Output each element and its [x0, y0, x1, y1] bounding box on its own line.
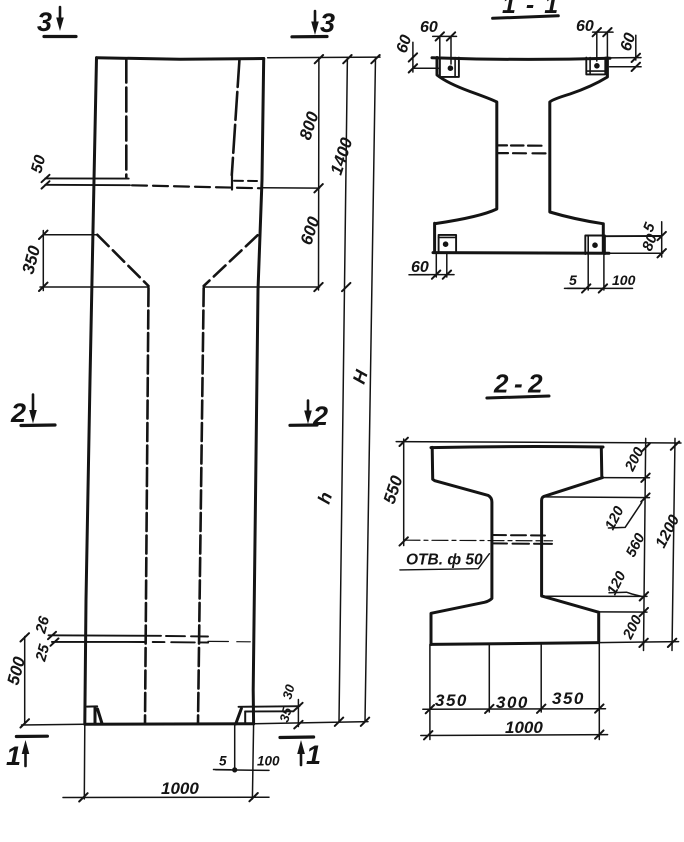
svg-text:200: 200: [620, 613, 646, 643]
svg-text:H: H: [349, 367, 372, 386]
svg-text:600: 600: [297, 214, 324, 247]
svg-text:1: 1: [6, 741, 21, 771]
svg-text:300: 300: [496, 693, 529, 712]
svg-text:5: 5: [569, 272, 577, 288]
svg-text:60: 60: [420, 19, 438, 36]
svg-text:2-2: 2-2: [493, 369, 548, 399]
svg-text:120: 120: [604, 569, 629, 598]
svg-text:3: 3: [37, 7, 52, 37]
svg-text:350: 350: [19, 243, 45, 276]
svg-text:60: 60: [576, 18, 594, 35]
svg-text:60: 60: [394, 33, 416, 55]
svg-text:100: 100: [612, 272, 636, 288]
svg-text:1000: 1000: [161, 779, 199, 798]
svg-text:3: 3: [320, 8, 335, 38]
svg-text:550: 550: [380, 473, 407, 506]
svg-text:1: 1: [306, 740, 321, 770]
svg-text:ОТВ. ф 50: ОТВ. ф 50: [406, 552, 483, 569]
svg-text:h: h: [314, 490, 336, 507]
svg-text:60: 60: [411, 259, 429, 276]
svg-text:80: 80: [639, 231, 661, 253]
svg-text:1000: 1000: [505, 718, 543, 737]
svg-text:5: 5: [219, 754, 227, 769]
svg-text:350: 350: [552, 689, 585, 708]
svg-text:50: 50: [28, 153, 49, 175]
svg-text:35: 35: [276, 705, 294, 724]
svg-text:100: 100: [257, 754, 280, 769]
svg-text:30: 30: [279, 682, 297, 701]
svg-text:2: 2: [10, 398, 26, 428]
svg-text:26: 26: [32, 614, 53, 636]
svg-text:1200: 1200: [652, 512, 683, 551]
svg-text:1400: 1400: [327, 135, 357, 177]
svg-text:2: 2: [312, 401, 328, 431]
svg-text:350: 350: [435, 691, 468, 710]
svg-text:5: 5: [640, 220, 659, 235]
svg-text:500: 500: [4, 654, 30, 687]
